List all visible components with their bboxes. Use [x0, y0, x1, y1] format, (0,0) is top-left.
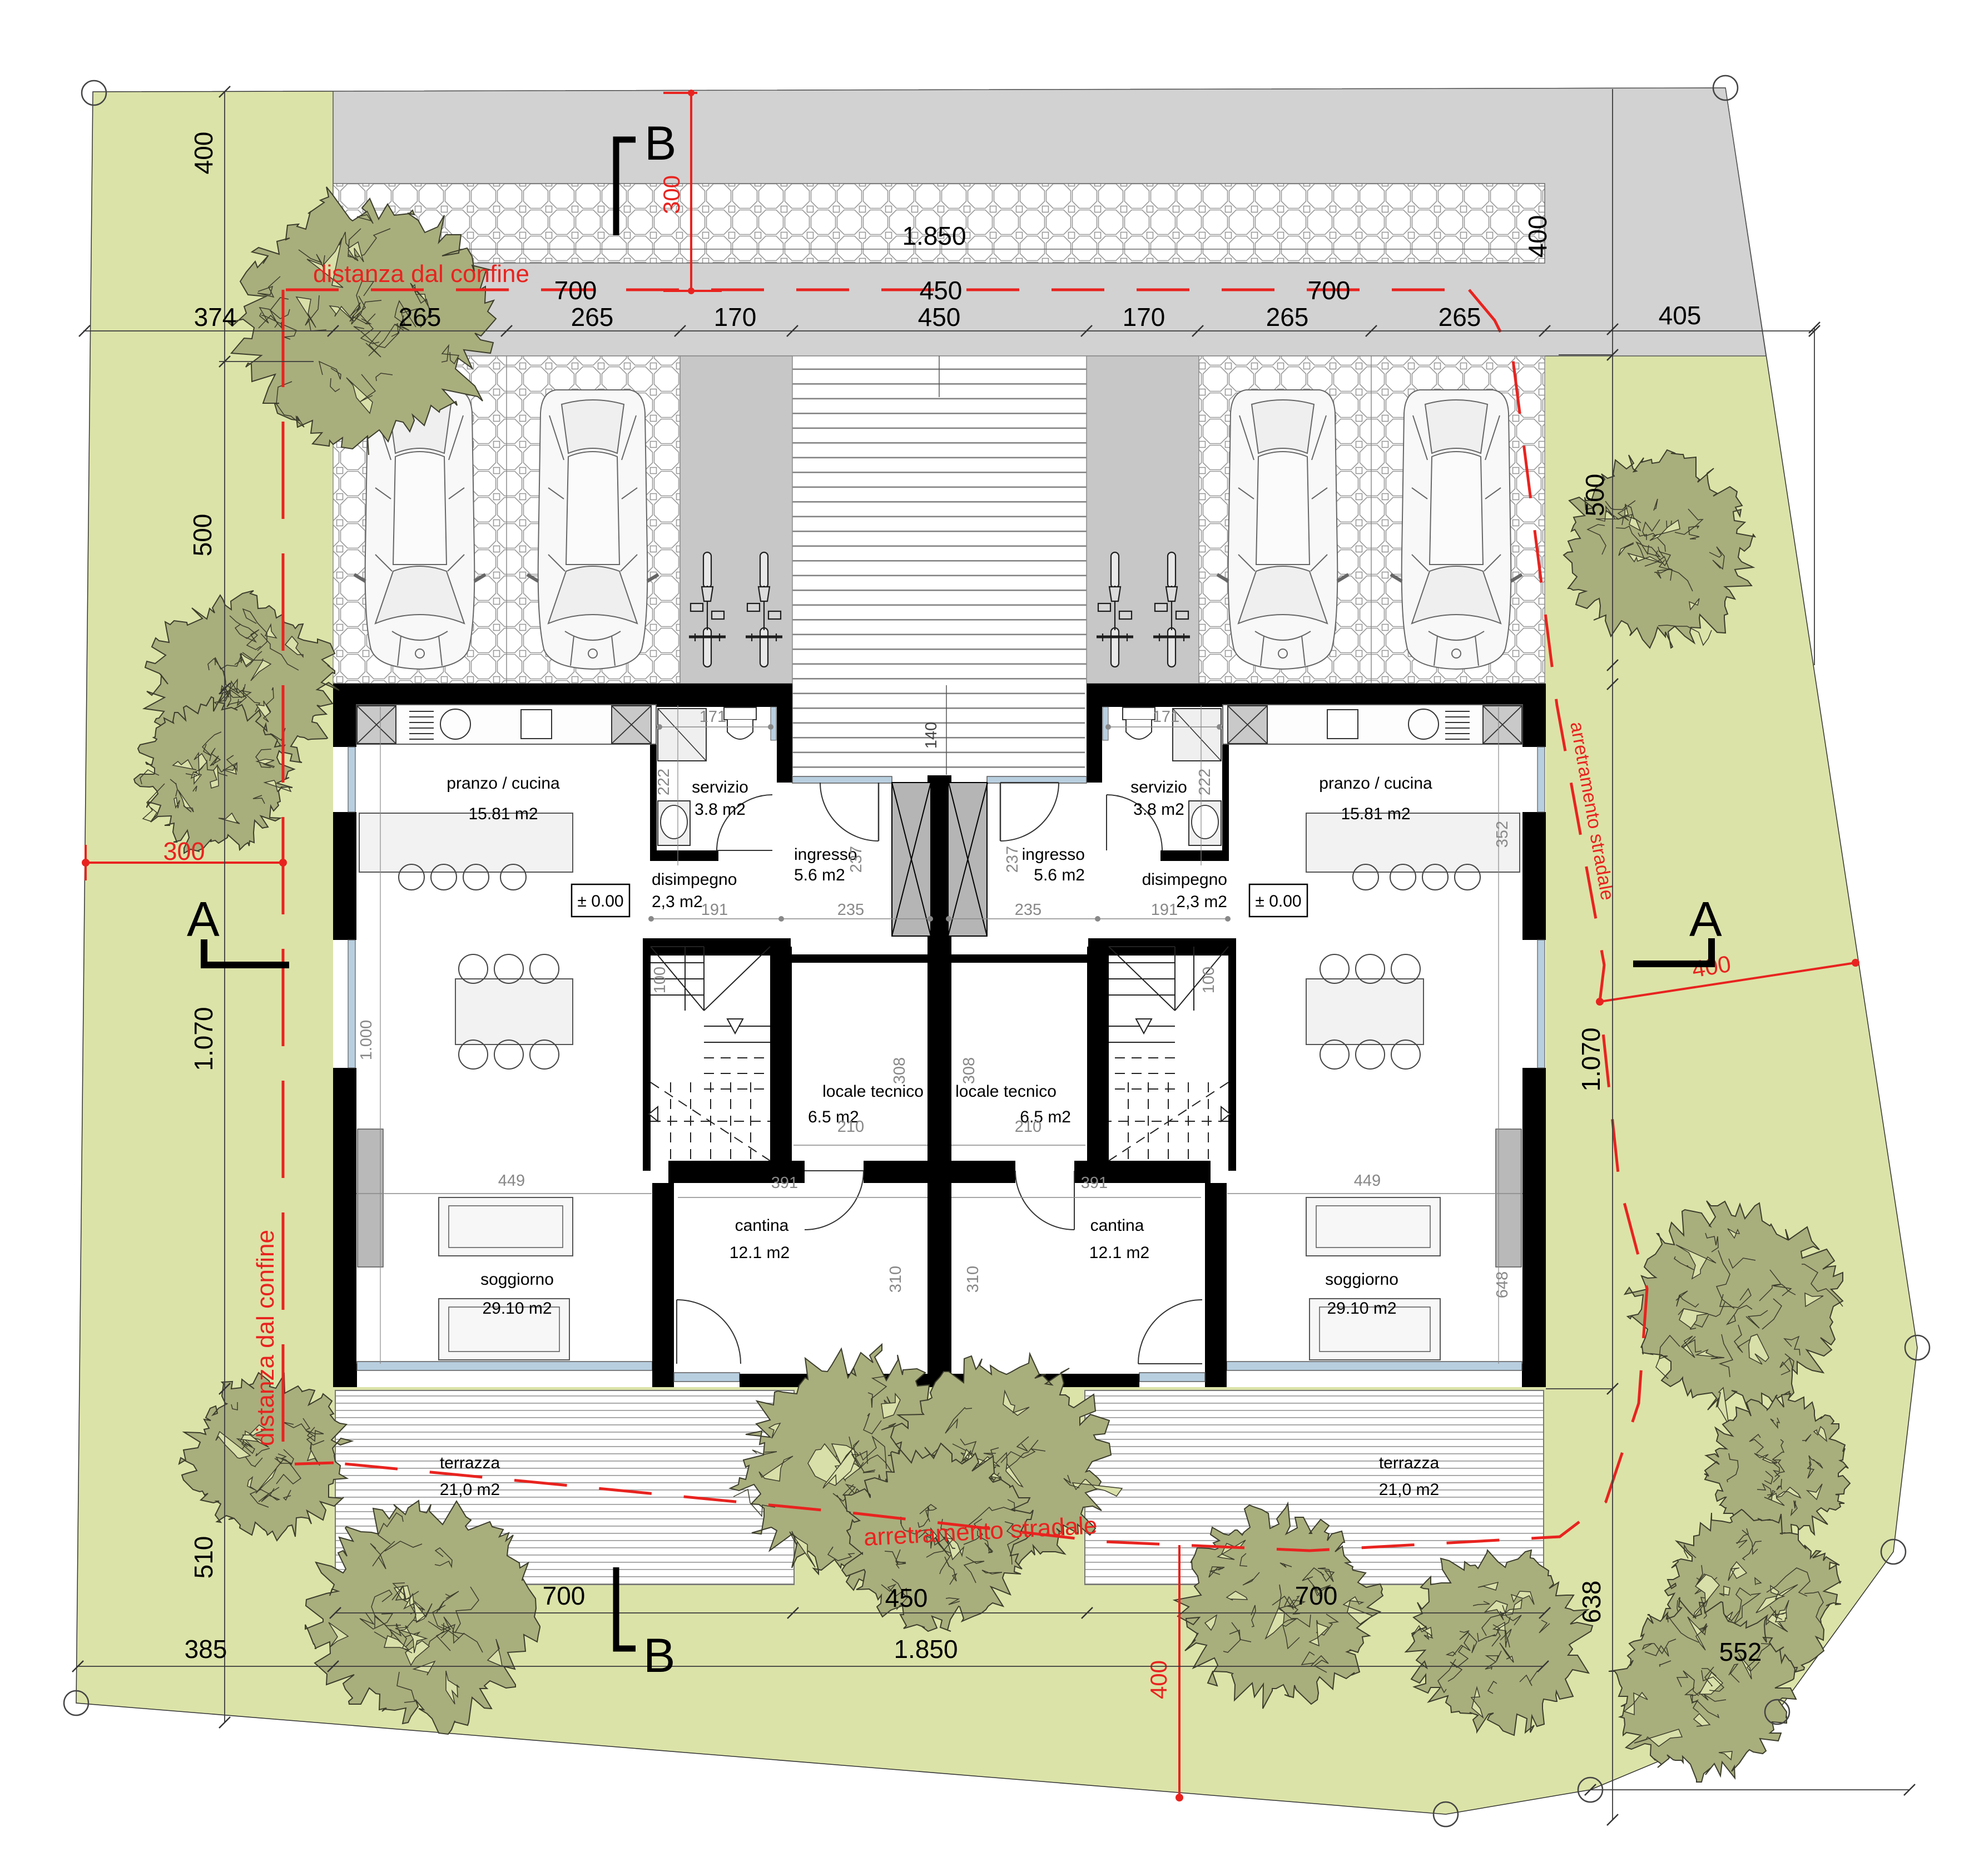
svg-text:210: 210: [1015, 1118, 1041, 1136]
svg-text:1.070: 1.070: [1576, 1027, 1605, 1091]
svg-text:391: 391: [1081, 1174, 1108, 1192]
svg-text:5.6 m2: 5.6 m2: [794, 866, 845, 884]
svg-text:ingresso: ingresso: [1022, 845, 1085, 864]
svg-text:1.850: 1.850: [902, 221, 966, 250]
svg-text:700: 700: [1308, 276, 1351, 305]
svg-text:A: A: [187, 892, 220, 947]
svg-text:12.1 m2: 12.1 m2: [730, 1244, 790, 1262]
svg-text:374: 374: [194, 303, 237, 331]
svg-text:locale tecnico: locale tecnico: [955, 1082, 1057, 1101]
svg-text:191: 191: [701, 901, 728, 919]
svg-text:170: 170: [1123, 303, 1165, 331]
svg-text:265: 265: [1266, 303, 1309, 331]
svg-text:pranzo / cucina: pranzo / cucina: [1319, 774, 1432, 793]
svg-text:385: 385: [185, 1635, 227, 1664]
svg-text:A: A: [1689, 892, 1722, 947]
svg-text:265: 265: [571, 303, 614, 331]
svg-text:12.1 m2: 12.1 m2: [1089, 1244, 1149, 1262]
svg-text:400: 400: [1523, 215, 1552, 258]
svg-text:510: 510: [189, 1536, 218, 1579]
svg-text:cantina: cantina: [735, 1216, 789, 1235]
svg-text:308: 308: [891, 1057, 909, 1084]
svg-text:638: 638: [1577, 1581, 1606, 1623]
svg-text:300: 300: [163, 837, 205, 865]
svg-text:2,3 m2: 2,3 m2: [1176, 893, 1227, 911]
svg-text:405: 405: [1659, 301, 1702, 330]
svg-text:552: 552: [1719, 1637, 1762, 1666]
svg-text:237: 237: [1004, 846, 1021, 873]
svg-text:450: 450: [918, 303, 961, 331]
svg-text:29.10 m2: 29.10 m2: [482, 1299, 552, 1318]
svg-text:191: 191: [1151, 901, 1178, 919]
svg-text:100: 100: [651, 967, 669, 993]
svg-text:distanza dal confine: distanza dal confine: [313, 260, 529, 288]
svg-text:210: 210: [837, 1118, 864, 1136]
svg-text:15.81 m2: 15.81 m2: [468, 805, 538, 823]
svg-text:171: 171: [1153, 708, 1179, 726]
svg-text:222: 222: [1196, 769, 1214, 795]
svg-text:disimpegno: disimpegno: [652, 870, 737, 889]
svg-text:700: 700: [1295, 1581, 1338, 1610]
svg-text:locale tecnico: locale tecnico: [822, 1082, 924, 1101]
svg-text:servizio: servizio: [1130, 778, 1187, 796]
svg-text:391: 391: [771, 1174, 798, 1192]
svg-text:171: 171: [700, 708, 726, 726]
svg-text:648: 648: [1494, 1271, 1511, 1298]
svg-text:terrazza: terrazza: [1379, 1454, 1440, 1472]
svg-text:300: 300: [658, 175, 685, 214]
svg-text:3.8 m2: 3.8 m2: [695, 800, 746, 819]
svg-text:1.070: 1.070: [189, 1007, 218, 1071]
svg-text:soggiorno: soggiorno: [480, 1270, 554, 1289]
svg-text:distanza dal confine: distanza dal confine: [252, 1230, 279, 1446]
svg-text:449: 449: [1354, 1172, 1381, 1190]
svg-text:± 0.00: ± 0.00: [1255, 892, 1301, 910]
svg-text:352: 352: [1494, 821, 1511, 848]
svg-text:15.81 m2: 15.81 m2: [1341, 805, 1410, 823]
svg-text:1.850: 1.850: [894, 1635, 958, 1664]
svg-text:500: 500: [188, 514, 217, 557]
svg-text:449: 449: [498, 1172, 525, 1190]
svg-text:1.000: 1.000: [358, 1020, 375, 1061]
svg-text:700: 700: [554, 276, 597, 305]
svg-text:21,0 m2: 21,0 m2: [440, 1481, 500, 1499]
svg-text:servizio: servizio: [692, 778, 748, 796]
svg-text:310: 310: [964, 1266, 982, 1293]
svg-text:237: 237: [847, 846, 865, 873]
svg-text:2,3 m2: 2,3 m2: [652, 893, 703, 911]
svg-text:100: 100: [1200, 967, 1218, 993]
svg-text:170: 170: [714, 303, 757, 331]
svg-text:± 0.00: ± 0.00: [577, 892, 623, 910]
svg-text:222: 222: [655, 769, 673, 795]
svg-text:450: 450: [885, 1583, 928, 1612]
svg-text:235: 235: [1015, 901, 1041, 919]
svg-text:450: 450: [920, 276, 963, 305]
svg-text:265: 265: [399, 303, 442, 331]
svg-text:140: 140: [922, 722, 940, 749]
svg-text:308: 308: [960, 1057, 978, 1084]
svg-text:soggiorno: soggiorno: [1325, 1270, 1398, 1289]
svg-text:21,0 m2: 21,0 m2: [1379, 1481, 1439, 1499]
svg-text:5.6 m2: 5.6 m2: [1034, 866, 1085, 884]
svg-text:310: 310: [887, 1266, 905, 1293]
svg-text:700: 700: [543, 1581, 586, 1610]
svg-text:3.8 m2: 3.8 m2: [1133, 800, 1184, 819]
svg-text:B: B: [643, 1629, 675, 1682]
svg-text:29.10 m2: 29.10 m2: [1327, 1299, 1396, 1318]
svg-text:500: 500: [1580, 474, 1609, 517]
svg-text:cantina: cantina: [1090, 1216, 1144, 1235]
svg-text:pranzo / cucina: pranzo / cucina: [447, 774, 560, 793]
svg-text:disimpegno: disimpegno: [1142, 870, 1227, 889]
svg-text:265: 265: [1439, 303, 1481, 331]
svg-text:400: 400: [189, 132, 218, 175]
svg-text:terrazza: terrazza: [440, 1454, 500, 1472]
svg-text:B: B: [644, 117, 676, 170]
svg-text:235: 235: [837, 901, 864, 919]
